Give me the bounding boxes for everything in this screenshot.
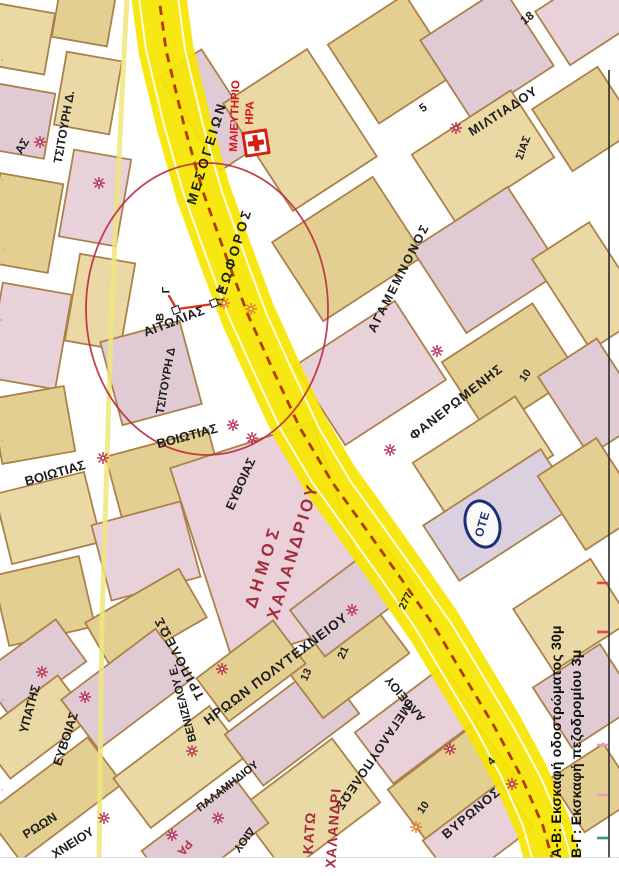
intersection-asterisk-icon [227, 418, 239, 436]
intersection-asterisk-icon [36, 665, 48, 683]
intersection-asterisk-icon [245, 302, 257, 320]
intersection-asterisk-icon [93, 176, 105, 194]
legend-line-1: Α-Β: Εκσκαφή οδοστρώματος 30μ [546, 548, 566, 858]
intersection-asterisk-icon [450, 121, 462, 139]
intersection-asterisk-icon [218, 296, 230, 314]
scan-bottom-edge [0, 858, 619, 876]
ote-logo-text: OTE [472, 509, 493, 538]
label-marker-b: Β [156, 313, 167, 321]
label-ira: ΗΡΑ [245, 101, 257, 125]
intersection-asterisk-icon [384, 443, 396, 461]
map-canvas [0, 0, 619, 876]
intersection-asterisk-icon [186, 744, 198, 762]
intersection-asterisk-icon [506, 777, 518, 795]
intersection-asterisk-icon [444, 742, 456, 760]
intersection-asterisk-icon [410, 820, 422, 838]
intersection-asterisk-icon [246, 431, 258, 449]
intersection-asterisk-icon [98, 811, 110, 829]
intersection-asterisk-icon [431, 344, 443, 362]
excavation-legend: Α-Β: Εκσκαφή οδοστρώματος 30μ Β-Γ: Εκσκα… [546, 548, 587, 858]
legend-line-2: Β-Γ: Εκσκαφή πεζοδρομίου 3μ [566, 548, 586, 858]
label-kato: ΚΑΤΩ [301, 811, 318, 854]
intersection-asterisk-icon [79, 690, 91, 708]
label-marker-a: Α [216, 286, 227, 294]
scanned-map-page: OTE Α-Β: Εκσκαφή οδοστρώματος 30μ Β-Γ: Ε… [0, 0, 619, 876]
hospital-red-cross-icon [241, 128, 271, 158]
intersection-asterisk-icon [216, 662, 228, 680]
intersection-asterisk-icon [212, 811, 224, 829]
intersection-asterisk-icon [166, 828, 178, 846]
label-marker-g: Γ [162, 287, 173, 294]
intersection-asterisk-icon [34, 135, 46, 153]
intersection-asterisk-icon [97, 451, 109, 469]
intersection-asterisk-icon [346, 603, 358, 621]
